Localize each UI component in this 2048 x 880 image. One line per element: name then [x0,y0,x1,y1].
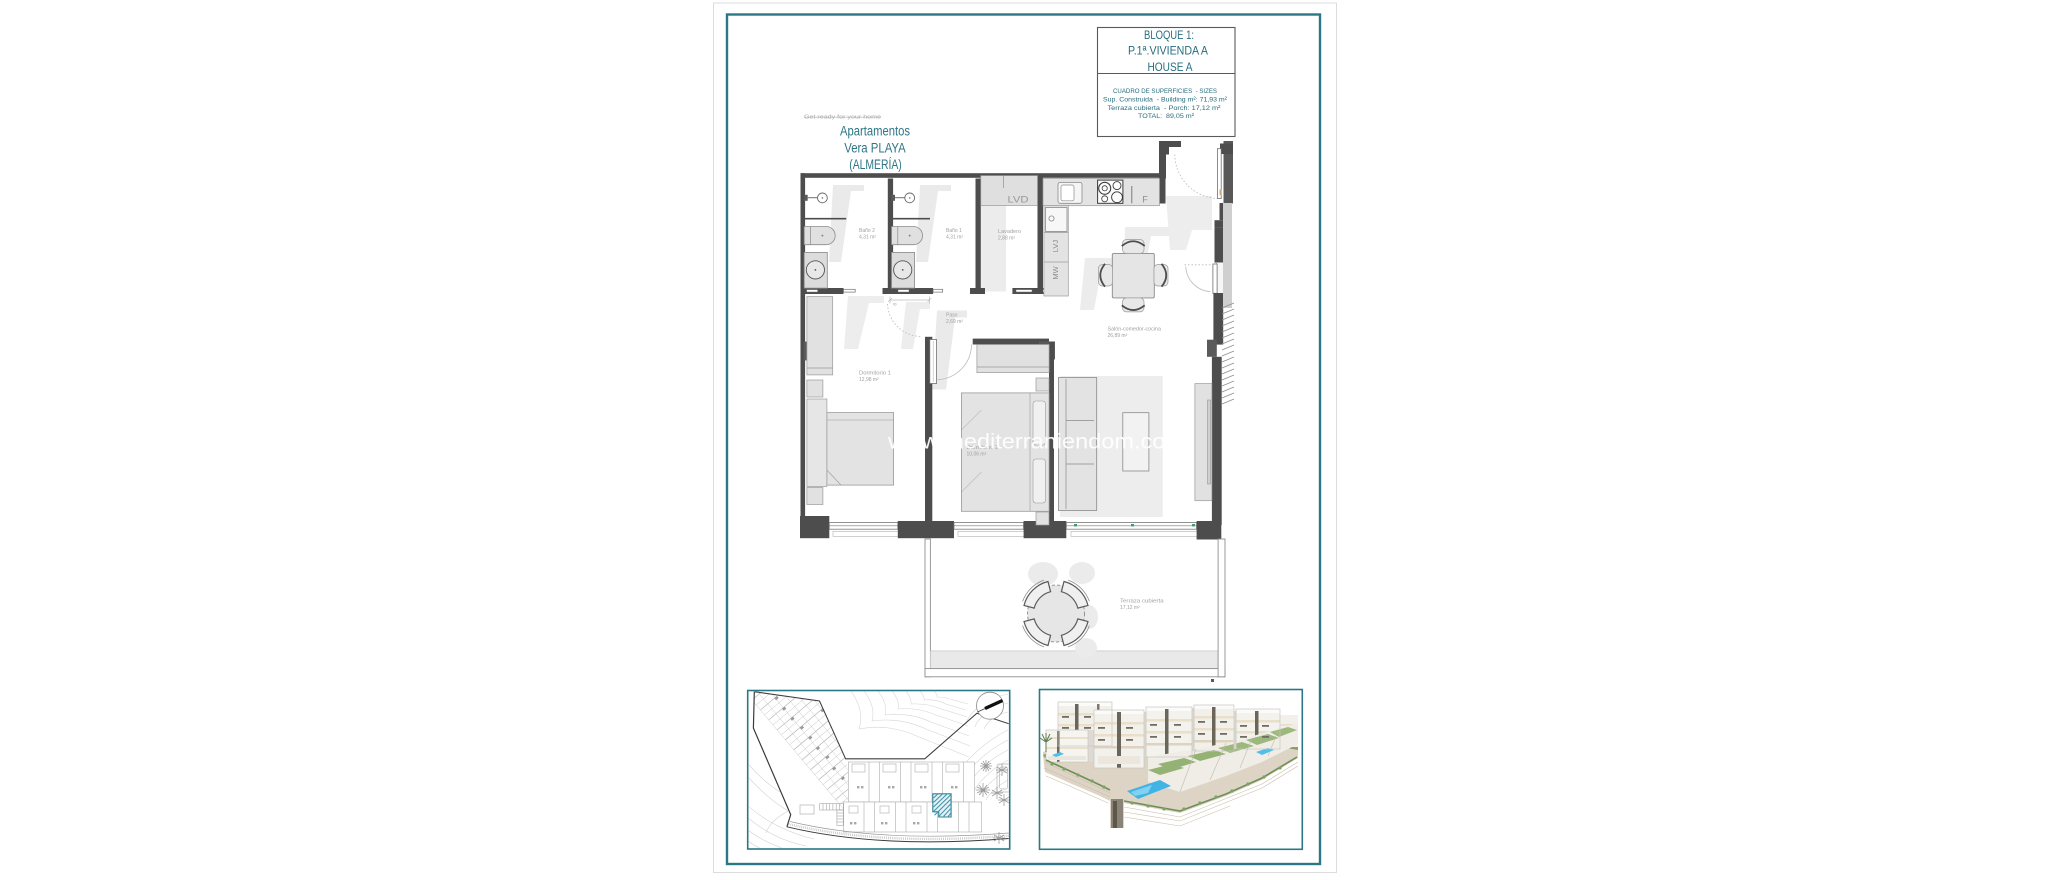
svg-text:BLOQUE 1:: BLOQUE 1: [1144,28,1194,42]
svg-text:90: 90 [893,303,897,307]
svg-text:LVD: LVD [1008,195,1030,205]
svg-text:4,31 m²: 4,31 m² [859,235,876,241]
svg-text:4,31 m²: 4,31 m² [946,235,963,241]
svg-text:Terraza cubierta: Terraza cubierta [1120,599,1164,605]
svg-text:Baño 2: Baño 2 [859,228,875,234]
svg-text:Sup. Construida - Building m²: Sup. Construida - Building m²: 71,93 m² [1103,97,1228,104]
svg-text:(ALMERÍA): (ALMERÍA) [849,157,902,172]
svg-text:Paso: Paso [946,313,958,319]
svg-text:Vera PLAYA: Vera PLAYA [844,140,906,155]
svg-text:LVJ: LVJ [1051,240,1060,253]
svg-text:26,89 m²: 26,89 m² [1108,333,1128,339]
svg-text:F: F [1142,195,1148,205]
svg-text:Get ready for your home: Get ready for your home [804,115,881,121]
svg-text:Salón-comedor-cocina: Salón-comedor-cocina [1108,327,1162,333]
svg-text:www.mediterraniendom.com: www.mediterraniendom.com [887,431,1185,454]
svg-text:2,69 m²: 2,69 m² [946,319,963,325]
svg-text:HOUSE A: HOUSE A [1148,60,1193,74]
svg-text:12,98 m²: 12,98 m² [859,377,879,383]
svg-text:MW: MW [1051,265,1060,279]
svg-text:Baño 1: Baño 1 [946,228,962,234]
svg-text:CUADRO DE SUPERFICIES - SIZES: CUADRO DE SUPERFICIES - SIZES [1113,88,1217,95]
svg-text:Apartamentos: Apartamentos [840,124,910,139]
svg-text:Dormitorio 1: Dormitorio 1 [859,371,891,377]
svg-text:TOTAL: 89,05 m²: TOTAL: 89,05 m² [1138,113,1195,120]
svg-text:P.1ª.VIVIENDA A: P.1ª.VIVIENDA A [1128,44,1208,58]
svg-text:17,12 m²: 17,12 m² [1120,605,1140,611]
svg-text:Lavadero: Lavadero [998,229,1021,235]
svg-text:Terraza cubierta - Porch: 17,: Terraza cubierta - Porch: 17,12 m² [1108,105,1222,112]
svg-text:2,88 m²: 2,88 m² [998,236,1015,242]
